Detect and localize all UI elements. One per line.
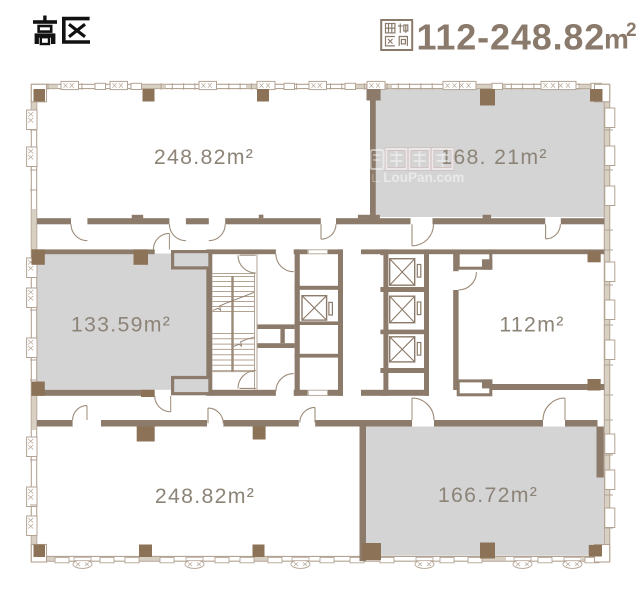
svg-text:168. 21m²: 168. 21m² xyxy=(440,145,548,169)
svg-text:∟LouPan.com: ∟LouPan.com xyxy=(370,170,464,185)
svg-text:248.82m²: 248.82m² xyxy=(154,145,254,169)
svg-text:166.72m²: 166.72m² xyxy=(438,483,538,507)
svg-text:133.59m²: 133.59m² xyxy=(71,313,171,337)
svg-text:248.82m²: 248.82m² xyxy=(155,484,255,508)
svg-text:2: 2 xyxy=(626,20,637,41)
svg-text:112-248.82: 112-248.82 xyxy=(417,17,606,58)
svg-text:112m²: 112m² xyxy=(499,313,564,337)
